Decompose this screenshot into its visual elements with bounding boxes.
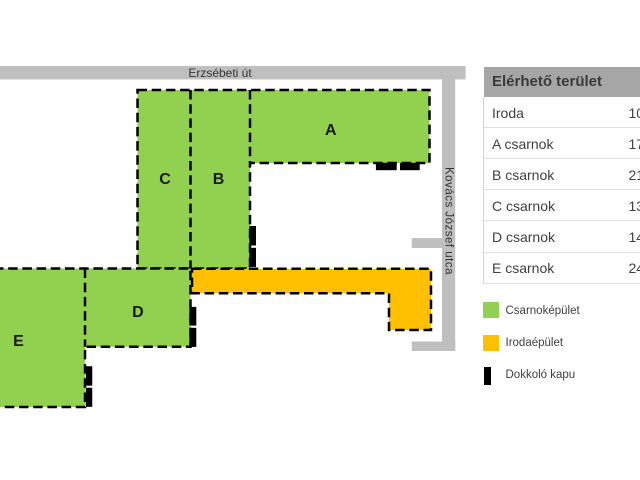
svg-text:E: E	[13, 333, 24, 350]
svg-text:C: C	[159, 171, 171, 188]
svg-text:Erzsébeti út: Erzsébeti út	[188, 66, 252, 80]
svg-text:B: B	[213, 171, 225, 188]
svg-text:D: D	[132, 304, 144, 321]
svg-text:Kovács József utca: Kovács József utca	[443, 167, 456, 275]
svg-text:A: A	[325, 122, 337, 139]
